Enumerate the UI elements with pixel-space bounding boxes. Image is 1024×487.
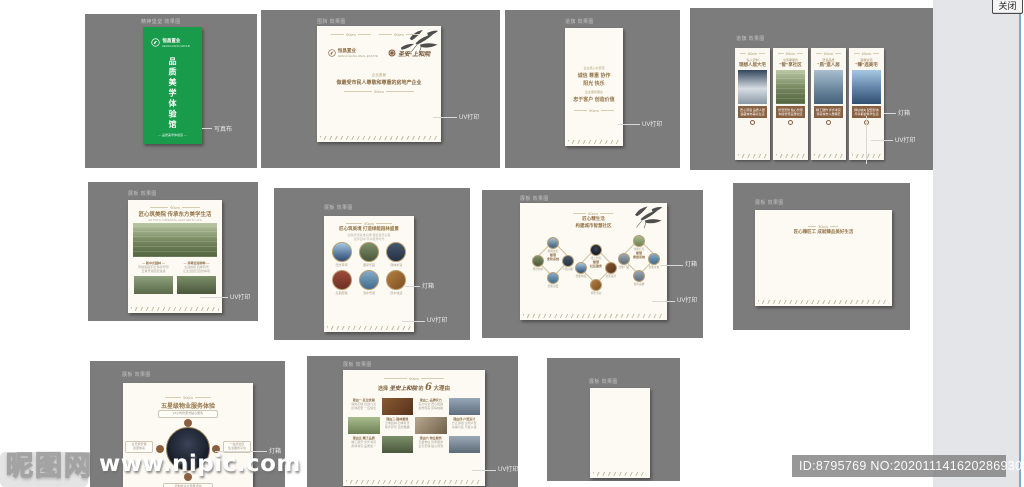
feature-photo-circle [359, 242, 379, 262]
road-flag: 60cm 全周期服务 “智”享社区 智慧安防 贴心管家 构建智慧宜居社区 [773, 48, 808, 160]
feature-cluster: 智慧 社区服务 线上管家 智能快递 社区医疗 邻里活动 [575, 246, 617, 296]
circle-caption: 原木栈道 [384, 291, 409, 295]
panel-annotation: 展板 效果图 [122, 371, 151, 378]
callout-leader-line [405, 286, 420, 287]
dimension-label: 90cm [574, 108, 614, 113]
cluster-photo [590, 279, 602, 291]
panel-annotation: 展板 效果图 [324, 204, 353, 211]
circle-caption: 童梦乐园 [356, 263, 381, 267]
feature-cluster: 智慧 家居系统 智能灯光 智能门锁 智能家电 新风系统 [618, 237, 660, 287]
dimension-label: 90cm [165, 395, 211, 400]
dimension-label: 50cm [344, 89, 414, 94]
callout-leader-line [660, 265, 683, 266]
cluster-photo [648, 253, 660, 265]
hoarding-poster: 90cm 90cm 恒昌置业 HENGCHANG REAL ESTATE 圣安·… [317, 26, 441, 142]
callout-leader-line [866, 116, 867, 164]
board-subtitle: 漫步园中 尽享惬意时光 [324, 237, 414, 241]
material-callout-label: UV打印 [459, 112, 479, 121]
reason-text: 方正通透 全明户型 动静分区 尺度从容 [449, 422, 481, 430]
material-callout-label: UV打印 [895, 135, 915, 144]
preview-panel-reasons-board: 展板 效果图 90cm 选择 圣安上和院 的 6 大理由 理由一·区位优越城央芯… [307, 356, 518, 487]
circle-caption: 阳光草坪 [329, 263, 354, 267]
cut-marks [320, 136, 438, 140]
reason-text: 五星物业 管家服务 全天安保 贴心周到 [415, 441, 447, 449]
trees-photo [177, 276, 216, 294]
cluster-photo [532, 255, 544, 267]
cluster-photo [618, 253, 630, 265]
cluster-caption: 新风系统 [632, 282, 646, 286]
flag-photo [814, 70, 843, 104]
road-flag: 60cm 私人定制 理想人居大宅 匠心营造 品质人居 臻藏城市美好生活 [735, 48, 770, 160]
board-subtitle: 园林景观多维演绎 邂逅自然之美 [324, 233, 414, 237]
material-callout-label: UV打印 [427, 315, 447, 324]
headline-suffix: 大理由 [434, 384, 451, 392]
reason-photo [382, 398, 414, 415]
panel-annotation: 道旗 效果图 [565, 18, 594, 25]
watermark-site-url: www.nipic.com [99, 451, 301, 477]
circle-caption: 滨水景观 [356, 291, 381, 295]
aerial-render-photo [133, 223, 217, 257]
flag-title: 理想人居大宅 [735, 62, 770, 68]
cluster-photo [633, 235, 645, 247]
flag-title: “质”造人居 [811, 62, 846, 68]
material-callout-label: 灯箱 [422, 281, 434, 290]
panel-annotation: 精神堡垒 效果图 [141, 18, 181, 25]
preview-panel-pylon: 精神堡垒 效果图 恒昌置业 HENGCHANG GROUP 品质美学体验馆 — … [85, 14, 257, 168]
material-callout-label: 灯箱 [685, 259, 697, 268]
cluster-caption: 邻里活动 [589, 291, 603, 295]
feature-photo-circle [332, 242, 352, 262]
cluster-caption: 视频监控 [546, 249, 560, 253]
callout-leader-line [871, 140, 893, 141]
callout-leader-line [618, 124, 640, 125]
flag-logo-icon [750, 120, 755, 125]
flag-title: “臻”选美宅 [849, 62, 884, 68]
values-poster: 企业核心价值观 诚信 尊重 协作 阳光 快乐 企业服务理念 忠于客户 创造价值 … [565, 28, 623, 146]
values-line: 诚信 尊重 协作 [565, 72, 623, 79]
page-side-area [933, 0, 1024, 487]
seal-logo-icon [388, 44, 396, 62]
cluster-caption: 线上管家 [589, 256, 603, 260]
board-headline: 匠心臻匠工 成就臻品美好生活 [755, 229, 892, 235]
brand-name: 恒昌置业 [162, 38, 193, 43]
project-name: 圣安·上和院 [398, 49, 430, 58]
cut-marks [776, 154, 805, 158]
panel-annotation: 道旗 效果图 [736, 35, 765, 42]
reason-text: 精工细节 步步考究 用材考究 品质如一 [348, 441, 380, 449]
flag-logo-icon [826, 120, 831, 125]
preview-panel-garden-board: 展板 效果图 90cm 匠心筑美院 传承东方美学生活 ARTISTIC ORIE… [88, 182, 258, 321]
feature-photo-circle [386, 270, 406, 290]
panel-annotation: 围挡 效果图 [317, 18, 346, 25]
preview-panel-blank-board: 展板 效果图 30cm 匠心臻匠工 成就臻品美好生活 [733, 183, 910, 330]
callout-leader-line [652, 301, 675, 302]
dimension-label: 90cm [384, 376, 444, 381]
cut-marks [814, 154, 843, 158]
brand-subtitle: HENGCHANG REAL ESTATE [338, 54, 378, 58]
reason-text: 城央芯脉 四通八达 醇熟配套 一应俱全 [348, 403, 380, 411]
road-flag: 60cm 匠造品质 “质”造人居 精工细作 步步考究 铸就城市人居典范 [811, 48, 846, 160]
brand-logo-icon [328, 44, 336, 62]
flag-text-box: 精工细作 步步考究 铸就城市人居典范 [814, 106, 843, 118]
flag-photo [738, 70, 767, 104]
dimension-label: 90cm [331, 32, 371, 37]
panel-annotation: 展板 效果图 [520, 195, 549, 202]
smart-poster: 60cm 匠心精生活 构建城市智慧社区 智慧 安防系统 视频监控 周界防护 人脸… [520, 203, 667, 320]
cluster-photo [633, 270, 645, 282]
board-headline: 匠心筑美境 打造绿能园林盛景 [324, 226, 414, 232]
cluster-caption: 智能灯光 [632, 247, 646, 251]
headline-mid: 的 [419, 385, 424, 392]
reason-text: 五重园林 四季有景 移步异景 自然雅趣 [382, 422, 414, 430]
cut-marks [568, 140, 620, 144]
watermark-site-name: 昵图网 [6, 444, 93, 483]
flag-logo-icon [788, 120, 793, 125]
values-label: 企业服务理念 [565, 90, 623, 94]
material-callout-label: 灯箱 [898, 108, 910, 117]
values-line: 忠于客户 创造价值 [565, 96, 623, 103]
callout-leader-line [200, 297, 228, 298]
board-headline: 构建城市智慧社区 [520, 223, 667, 229]
feature-photo-circle [332, 270, 352, 290]
flag-photo [776, 70, 805, 104]
callout-leader-line [402, 321, 425, 322]
callout-leader-line [433, 117, 457, 118]
preview-panel-hoarding: 围挡 效果图 90cm 90cm 恒昌置业 HENGCHANG REAL EST… [261, 10, 500, 168]
brand-subtitle: HENGCHANG GROUP [162, 44, 190, 48]
reasons-grid: 理由一·区位优越城央芯脉 四通八达 醇熟配套 一应俱全 理由二·品牌实力实力房企… [348, 398, 480, 453]
vision-slogan: 做最受市民人尊敬和尊重的房地产企业 [317, 79, 441, 86]
reasons-poster: 90cm 选择 圣安上和院 的 6 大理由 理由一·区位优越城央芯脉 四通八达 … [343, 370, 485, 486]
reasons-headline: 选择 圣安上和院 的 6 大理由 [343, 382, 485, 393]
preview-panel-blank-portrait: 展板 效果图 [547, 358, 680, 481]
flag-title: “智”享社区 [773, 62, 808, 68]
green-pylon-banner: 恒昌置业 HENGCHANG GROUP 品质美学体验馆 — 品质美学体验馆 — [143, 27, 202, 144]
circle-caption: 红韵廊架 [329, 291, 354, 295]
material-callout-label: 写真布 [214, 124, 232, 133]
cut-marks [346, 480, 482, 484]
cut-marks [738, 154, 767, 158]
cut-marks [523, 314, 664, 318]
board-headline: 匠心精生活 [520, 216, 667, 222]
cluster-caption: 周界防护 [531, 267, 545, 271]
service-label: 24小时管家式贴心服务 [158, 410, 218, 418]
flag-photo [852, 70, 881, 104]
feature-cluster: 智慧 安防系统 视频监控 周界防护 人脸识别 智能巡更 [532, 239, 574, 289]
preview-panel-values-flag: 道旗 效果图 企业核心价值观 诚信 尊重 协作 阳光 快乐 企业服务理念 忠于客… [505, 10, 680, 168]
close-button[interactable]: 关闭 [992, 0, 1023, 14]
reason-photo [382, 436, 414, 453]
material-callout-label: UV打印 [677, 295, 697, 304]
callout-leader-line [472, 470, 496, 471]
brand-logo-icon [151, 34, 160, 52]
cut-marks [593, 472, 647, 476]
callout-leader-line [202, 128, 212, 129]
headline-number: 6 [425, 382, 432, 393]
column-text: 传统造园手法 移步异景 五重景观层层递进 [134, 266, 173, 274]
headline-prefix: 选择 [378, 385, 388, 392]
reason-photo [449, 398, 481, 415]
cluster-caption: 智能巡更 [546, 284, 560, 288]
cluster-photo [575, 262, 587, 274]
panel-annotation: 展板 效果图 [128, 190, 157, 197]
headline-project-name: 圣安上和院 [390, 384, 418, 392]
material-callout-label: UV打印 [230, 292, 250, 301]
values-line: 阳光 快乐 [565, 80, 623, 87]
vision-label: 企业愿景 [317, 73, 441, 78]
cluster-caption: 智能门锁 [617, 265, 631, 269]
landscape-poster: 90cm 匠心筑美境 打造绿能园林盛景 园林景观多维演绎 邂逅自然之美 漫步园中… [324, 216, 414, 332]
cluster-caption: 社区医疗 [604, 274, 618, 278]
dimension-label: 60cm [778, 51, 803, 56]
dimension-label: 90cm [379, 32, 419, 37]
material-callout-label: UV打印 [642, 119, 662, 128]
pylon-title: 品质美学体验馆 [167, 57, 178, 131]
feature-photo-circle [359, 270, 379, 290]
cut-marks [758, 300, 889, 304]
watermark-logo: 昵图网 www.nipic.com [6, 444, 301, 483]
panel-annotation: 展板 效果图 [755, 199, 784, 206]
service-label: 定制化业主专属活动 [163, 483, 213, 487]
column-text: 全冠移植 四季有景 让生活回归自然本真 [177, 266, 216, 274]
cut-marks [131, 307, 219, 311]
flag-text-box: 匠心营造 品质人居 臻藏城市美好生活 [738, 106, 767, 118]
circle-caption: 康体步道 [384, 263, 409, 267]
dimension-label: 60cm [740, 51, 765, 56]
board-subtitle: ARTISTIC ORIENTAL AESTHETIC LIFE [128, 218, 222, 222]
cluster-photo [547, 272, 559, 284]
reason-text: 实力房企 匠心钜献 载誉而来 值得信赖 [415, 403, 447, 411]
preview-panel-smart-board: 展板 效果图 60cm 匠心精生活 构建城市智慧社区 智慧 安防系统 视频监控 … [482, 190, 703, 338]
cluster-photo [590, 244, 602, 256]
preview-panel-road-flags: 道旗 效果图 60cm 私人定制 理想人居大宅 匠心营造 品质人居 臻藏城市美好… [690, 8, 933, 170]
dimension-label: 60cm [816, 51, 841, 56]
watermark-id-badge: ID:8795769 NO:20201114162028693000 [792, 455, 1006, 477]
callout-leader-line [884, 113, 896, 114]
material-callout-label: UV打印 [498, 464, 518, 473]
values-label: 企业核心价值观 [565, 66, 623, 70]
feature-photo-circle [386, 242, 406, 262]
reason-photo [415, 417, 447, 434]
pylon-footer: — 品质美学体验馆 — [143, 133, 202, 137]
dimension-label: 60cm [854, 51, 879, 56]
flag-text-box: 智慧安防 贴心管家 构建智慧宜居社区 [776, 106, 805, 118]
service-node-icon [184, 419, 192, 427]
cluster-caption: 智能快递 [574, 274, 588, 278]
preview-panel-landscape-board: 展板 效果图 90cm 匠心筑美境 打造绿能园林盛景 园林景观多维演绎 邂逅自然… [274, 188, 470, 340]
blank-wide-poster: 30cm 匠心臻匠工 成就臻品美好生活 [755, 210, 892, 306]
panel-annotation: 展板 效果图 [343, 361, 372, 368]
cluster-photo [547, 237, 559, 249]
reason-photo [348, 417, 380, 434]
blank-portrait-poster [590, 388, 650, 478]
cut-marks [327, 326, 411, 330]
panel-annotation: 展板 效果图 [589, 378, 618, 385]
courtyard-photo [134, 276, 173, 294]
board-headline: 五星级物业服务体验 [123, 401, 253, 410]
reason-photo [449, 436, 481, 453]
